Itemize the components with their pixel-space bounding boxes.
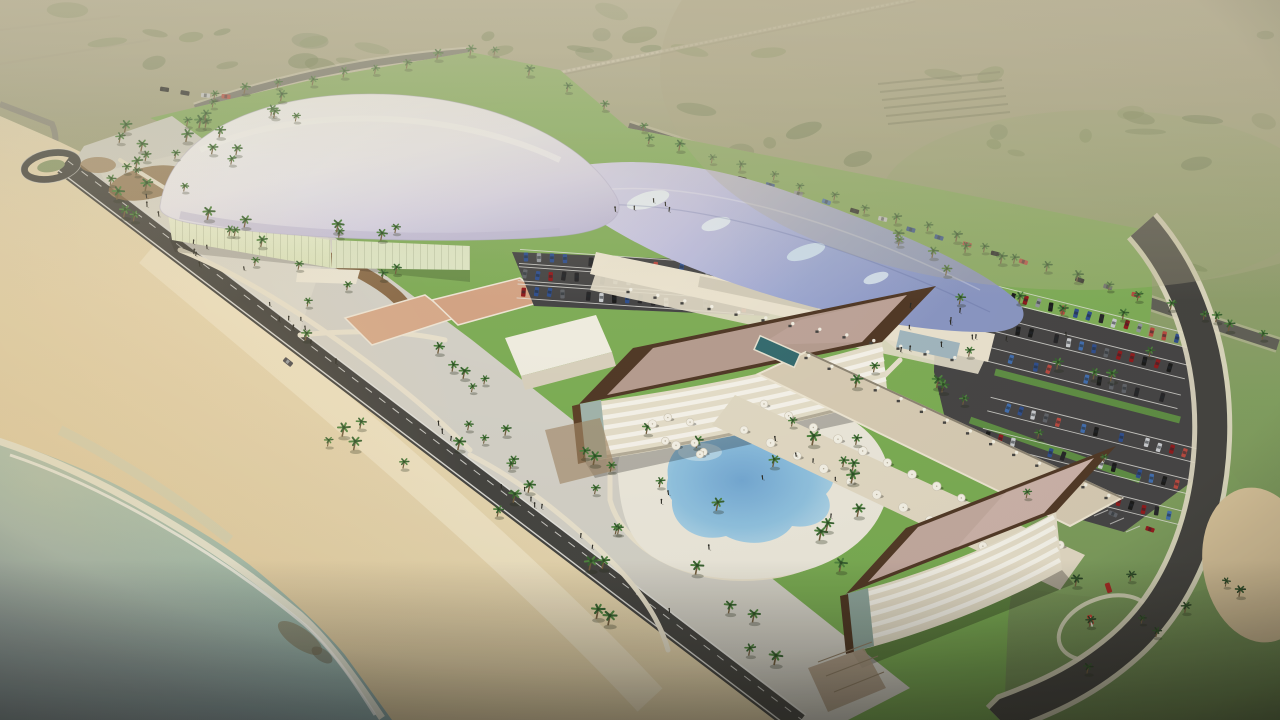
- rendering-canvas: [0, 0, 1280, 720]
- warm-tint: [0, 0, 1280, 720]
- resort-aerial-rendering: [0, 0, 1280, 720]
